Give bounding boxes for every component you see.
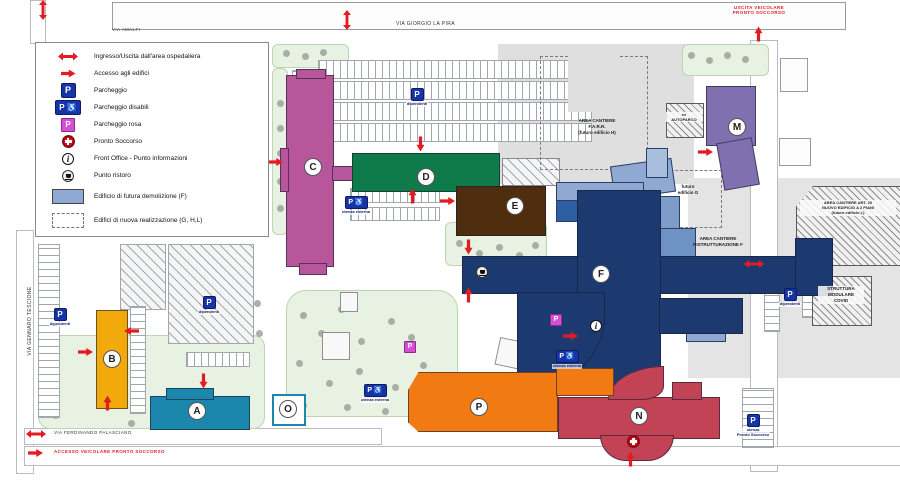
parking-caption: dipendenti bbox=[406, 102, 428, 107]
tree bbox=[277, 205, 284, 212]
tree bbox=[326, 380, 333, 387]
building-o-label: O bbox=[279, 400, 297, 418]
arrow-icon bbox=[42, 70, 94, 78]
tree bbox=[532, 242, 539, 249]
tree bbox=[382, 408, 389, 415]
building-c-label: C bbox=[304, 158, 322, 176]
info-glyph: i bbox=[67, 154, 70, 164]
tree bbox=[706, 57, 713, 64]
pink-parking-glyph: P bbox=[408, 343, 413, 350]
building-d-letter: D bbox=[422, 172, 429, 183]
tree bbox=[283, 50, 290, 57]
parking-glyph: P bbox=[787, 290, 792, 299]
pink-parking-icon: P bbox=[42, 118, 94, 132]
legend-label: Ingresso/Uscita dall'area ospedaliera bbox=[94, 53, 200, 60]
parking-icon: P bbox=[747, 414, 760, 427]
parking-icon: P bbox=[411, 88, 424, 101]
info-icon: i bbox=[590, 320, 602, 332]
building-c bbox=[296, 69, 326, 79]
tree bbox=[277, 100, 284, 107]
info-icon-glyph-box: i bbox=[62, 153, 74, 165]
tree bbox=[388, 318, 395, 325]
parking-caption: dipendenti bbox=[198, 310, 220, 315]
building-p-letter: P bbox=[476, 402, 483, 413]
wheelchair-glyph: ♿ bbox=[374, 387, 383, 394]
parking-caption: dipendenti bbox=[779, 302, 801, 307]
building-c bbox=[280, 148, 289, 192]
pink-parking-icon: P bbox=[404, 341, 416, 353]
building-a-letter: A bbox=[193, 406, 200, 417]
building-o-letter: O bbox=[284, 404, 292, 415]
map-legend: Ingresso/Uscita dall'area ospedaliera Ac… bbox=[35, 42, 269, 237]
tree bbox=[344, 404, 351, 411]
building-d-label: D bbox=[417, 168, 435, 186]
double-arrow-icon bbox=[42, 53, 94, 61]
legend-item-futura-demolizione: Edificio di futura demolizione (F) bbox=[36, 184, 268, 208]
parking-marker: P dipendenti bbox=[770, 288, 810, 307]
parking-lot bbox=[120, 244, 166, 310]
legend-label: Parcheggio rosa bbox=[94, 121, 141, 128]
legend-item-accesso-edifici: Accesso agli edifici bbox=[36, 65, 268, 82]
parking-marker: P dipendenti bbox=[397, 88, 437, 107]
legend-item-parcheggio-rosa: P Parcheggio rosa bbox=[36, 116, 268, 133]
street-label-accesso-veicolare: ACCESSO VEICOLARE PRONTO SOCCORSO bbox=[54, 449, 165, 454]
info-icon-glyph: i bbox=[595, 321, 598, 331]
legend-item-nuova-realizzazione: Edifici di nuova realizzazione (G, H,L) bbox=[36, 208, 268, 232]
pink-parking-icon: P bbox=[550, 314, 562, 326]
building-e bbox=[456, 186, 546, 236]
tree bbox=[277, 125, 284, 132]
disabled-parking-icon: P ♿ bbox=[42, 100, 94, 115]
legend-item-parcheggio: P Parcheggio bbox=[36, 82, 268, 99]
area-label-art20: AREA CANTIERE ART. 20 NUOVO EDIFICIO A 2… bbox=[800, 200, 896, 216]
demolition-swatch-icon bbox=[42, 189, 94, 204]
small-structure-outline bbox=[780, 58, 808, 92]
parking-marker: P dipendenti bbox=[189, 296, 229, 315]
tree bbox=[296, 360, 303, 367]
building-f bbox=[577, 190, 661, 390]
info-icon: i bbox=[42, 153, 94, 165]
access-arrow-icon bbox=[698, 148, 713, 156]
tree bbox=[128, 420, 135, 427]
disabled-parking-icon: P ♿ bbox=[364, 384, 387, 397]
disabled-parking-icon: P ♿ bbox=[345, 196, 368, 209]
park-fountain bbox=[322, 332, 350, 360]
green-area bbox=[682, 44, 769, 76]
new-construction-swatch-icon bbox=[42, 213, 94, 228]
access-arrow-icon bbox=[440, 197, 455, 205]
building-e-letter: E bbox=[512, 201, 519, 212]
parking-glyph: P bbox=[57, 310, 62, 319]
legend-label: Punto ristoro bbox=[94, 172, 131, 179]
building-f bbox=[659, 298, 743, 334]
cafe-icon-glyph bbox=[476, 266, 488, 278]
area-label-covid: STRUTTURA MODULARE COVID bbox=[818, 286, 864, 304]
legend-item-pronto-soccorso: Pronto Soccorso bbox=[36, 133, 268, 150]
building-m-letter: M bbox=[733, 122, 741, 133]
street-label-via-giorgio-la-pira: VIA GIORGIO LA PIRA bbox=[396, 21, 455, 27]
parking-lot bbox=[38, 244, 60, 418]
disabled-parking-marker: P ♿ utenza esterna bbox=[355, 384, 395, 403]
parking-glyph: P bbox=[59, 103, 64, 112]
parking-caption: utenza esterna bbox=[360, 398, 390, 403]
parking-icon: P bbox=[203, 296, 216, 309]
legend-label: Parcheggio disabili bbox=[94, 104, 149, 111]
building-c-d-connector bbox=[332, 166, 354, 181]
future-building-h-gap bbox=[568, 48, 618, 112]
emergency-icon bbox=[627, 435, 640, 448]
parking-glyph: P bbox=[750, 416, 755, 425]
tree bbox=[300, 312, 307, 319]
parking-glyph: P bbox=[559, 353, 564, 360]
park-structure bbox=[340, 292, 358, 312]
wheelchair-glyph: ♿ bbox=[566, 353, 575, 360]
parking-icon: P bbox=[54, 308, 67, 321]
tree bbox=[356, 368, 363, 375]
parking-icon: P bbox=[784, 288, 797, 301]
street-label-uscita-veicolare: USCITA VEICOLARE PRONTO SOCCORSO bbox=[714, 5, 804, 15]
tree bbox=[320, 49, 327, 56]
building-c bbox=[299, 263, 327, 275]
tree bbox=[688, 52, 695, 59]
building-m-label: M bbox=[728, 118, 746, 136]
legend-label: Pronto Soccorso bbox=[94, 138, 142, 145]
small-structure-outline bbox=[779, 138, 811, 166]
tree bbox=[496, 244, 503, 251]
parking-glyph: P bbox=[367, 387, 372, 394]
legend-item-ingresso-uscita: Ingresso/Uscita dall'area ospedaliera bbox=[36, 48, 268, 65]
parking-marker: P dipendenti bbox=[40, 308, 80, 327]
building-n-label: N bbox=[630, 407, 648, 425]
emergency-icon bbox=[42, 135, 94, 148]
parking-icon: P bbox=[42, 83, 94, 98]
disabled-parking-marker: P ♿ utenza esterna bbox=[336, 196, 376, 215]
building-c-letter: C bbox=[309, 162, 316, 173]
building-n bbox=[672, 382, 702, 400]
street-label-via-gennaro-tescione: VIA GENNARO TESCIONE bbox=[27, 261, 33, 381]
pink-parking-glyph: P bbox=[554, 316, 559, 323]
tree bbox=[724, 52, 731, 59]
parking-caption: utenza Pronto Soccorso bbox=[736, 428, 770, 438]
parking-lot bbox=[186, 352, 250, 367]
disabled-parking-icon: P ♿ bbox=[556, 350, 579, 363]
tree bbox=[256, 330, 263, 337]
building-a bbox=[166, 388, 214, 400]
wheelchair-glyph: ♿ bbox=[67, 103, 77, 112]
red-cross-icon bbox=[62, 135, 75, 148]
parking-glyph: P bbox=[65, 85, 71, 95]
cafe-icon-glyph bbox=[62, 170, 74, 182]
tree bbox=[456, 240, 463, 247]
demolition-building bbox=[646, 148, 668, 178]
parking-lot bbox=[168, 244, 254, 344]
building-p bbox=[556, 368, 614, 396]
tree bbox=[358, 338, 365, 345]
disabled-parking-marker: P ♿ utenza esterna bbox=[547, 350, 587, 369]
cafe-icon bbox=[42, 170, 94, 182]
area-label-cantiere-farr: AREA CANTIERE F.A.R.R. (futuro edificio … bbox=[552, 118, 642, 136]
area-label-futuro-g: futuro edificio G bbox=[660, 184, 716, 196]
legend-label: Front Office - Punto informazioni bbox=[94, 155, 187, 162]
building-f-label: F bbox=[592, 265, 610, 283]
tree bbox=[742, 56, 749, 63]
parking-glyph: P bbox=[206, 298, 211, 307]
wheelchair-glyph: ♿ bbox=[355, 199, 364, 206]
double-arrow-glyph bbox=[58, 53, 78, 61]
red-cross-icon bbox=[627, 435, 640, 448]
parking-glyph-box: P bbox=[61, 83, 76, 98]
area-label-autoparco: ex AUTOPARCO bbox=[666, 112, 702, 122]
parking-marker: P utenza Pronto Soccorso bbox=[733, 414, 773, 438]
tree bbox=[408, 334, 415, 341]
legend-item-front-office: i Front Office - Punto informazioni bbox=[36, 150, 268, 167]
parking-caption: utenza esterna bbox=[552, 364, 582, 369]
cafe-icon bbox=[476, 266, 488, 278]
demolition-swatch bbox=[52, 189, 84, 204]
parking-glyph: P bbox=[65, 120, 70, 129]
tree bbox=[254, 300, 261, 307]
parking-lot bbox=[130, 306, 146, 414]
street-label-via-ferdinando-palasciano: VIA FERDINANDO PALASCIANO bbox=[54, 430, 132, 435]
street-label-via-amalfi: VIA AMALFI bbox=[112, 27, 140, 32]
legend-label: Edifici di nuova realizzazione (G, H,L) bbox=[94, 217, 202, 224]
legend-label: Edificio di futura demolizione (F) bbox=[94, 193, 187, 200]
building-a-label: A bbox=[188, 402, 206, 420]
hospital-campus-map: C D E F M N A B O P i P P P dipendenti P… bbox=[0, 0, 900, 495]
building-b-label: B bbox=[103, 350, 121, 368]
building-p-label: P bbox=[470, 398, 488, 416]
disabled-parking-glyph-box: P ♿ bbox=[55, 100, 81, 115]
legend-item-parcheggio-disabili: P ♿ Parcheggio disabili bbox=[36, 99, 268, 116]
legend-item-punto-ristoro: Punto ristoro bbox=[36, 167, 268, 184]
arrow-glyph bbox=[61, 70, 76, 78]
parking-glyph: P bbox=[414, 90, 419, 99]
legend-label: Parcheggio bbox=[94, 87, 127, 94]
legend-label: Accesso agli edifici bbox=[94, 70, 149, 77]
tree bbox=[302, 53, 309, 60]
building-b-letter: B bbox=[108, 354, 115, 365]
building-f-letter: F bbox=[598, 269, 604, 280]
tree bbox=[420, 362, 427, 369]
building-n-letter: N bbox=[635, 411, 642, 422]
parking-caption: dipendenti bbox=[49, 322, 71, 327]
parking-caption: utenza esterna bbox=[341, 210, 371, 215]
parking-glyph: P bbox=[348, 199, 353, 206]
pink-parking-glyph-box: P bbox=[61, 118, 75, 132]
new-construction-swatch bbox=[52, 213, 84, 228]
building-e-label: E bbox=[506, 197, 524, 215]
area-label-ristrutturazione-f: AREA CANTIERE RISTRUTTURAZIONE F bbox=[680, 236, 756, 248]
